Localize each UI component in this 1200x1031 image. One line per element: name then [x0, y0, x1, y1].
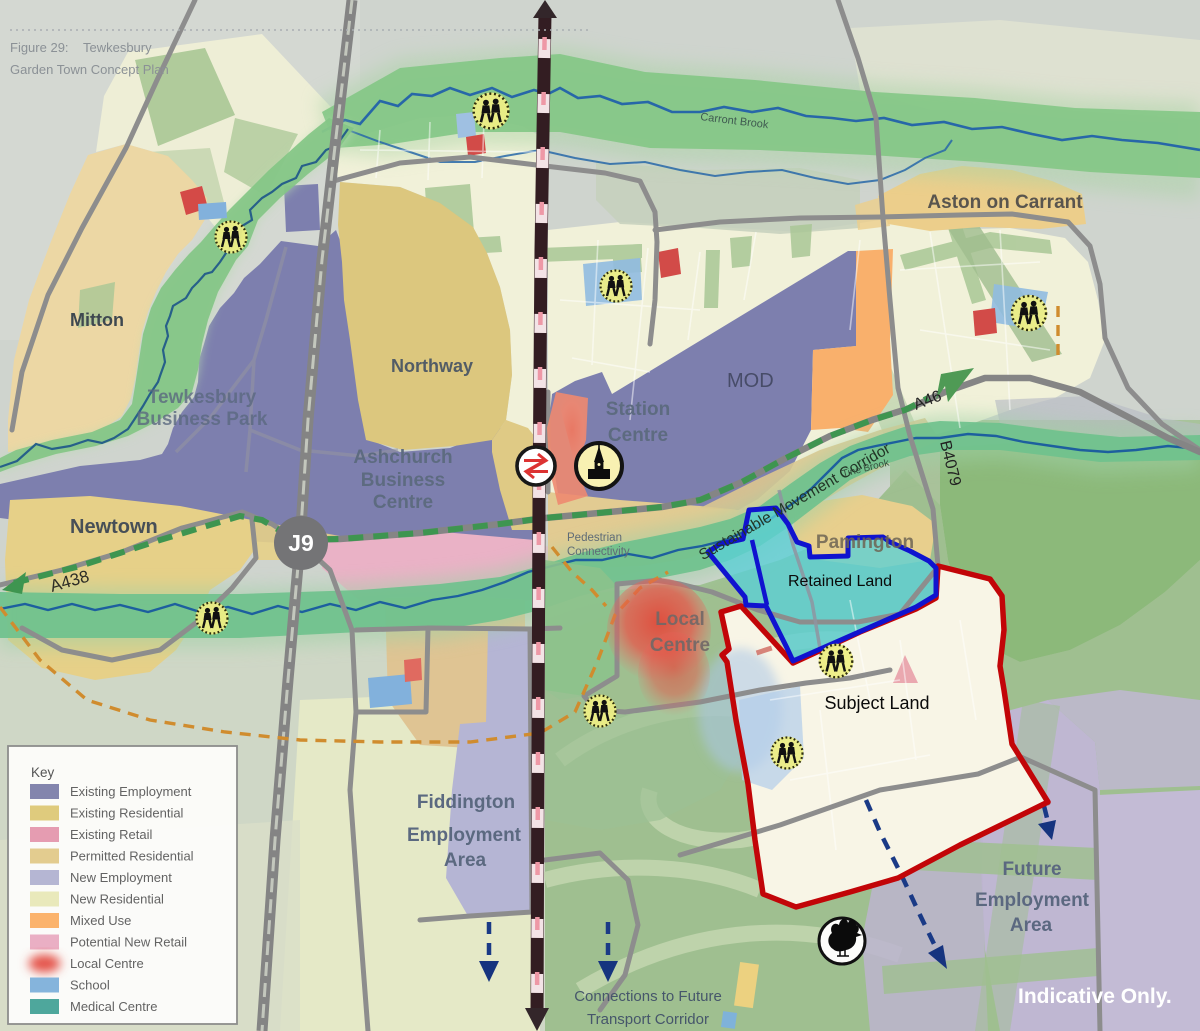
svg-text:Mixed Use: Mixed Use	[70, 913, 131, 928]
svg-text:Permitted Residential: Permitted Residential	[70, 849, 194, 864]
svg-text:Northway: Northway	[391, 356, 473, 376]
svg-text:Existing Retail: Existing Retail	[70, 827, 152, 842]
svg-text:Tewkesbury: Tewkesbury	[148, 387, 257, 408]
svg-text:Potential New Retail: Potential New Retail	[70, 935, 187, 950]
svg-text:New Residential: New Residential	[70, 892, 164, 907]
svg-text:Mitton: Mitton	[70, 310, 124, 330]
svg-text:Area: Area	[1010, 915, 1053, 936]
svg-text:Medical Centre: Medical Centre	[70, 999, 157, 1014]
svg-text:Figure 29: Tewkesbury: Figure 29: Tewkesbury	[10, 40, 152, 55]
svg-text:Centre: Centre	[650, 635, 710, 656]
svg-text:Transport Corridor: Transport Corridor	[587, 1011, 709, 1028]
svg-text:Garden Town Concept Plan: Garden Town Concept Plan	[10, 62, 169, 77]
svg-text:Station: Station	[606, 399, 670, 420]
svg-text:Aston on Carrant: Aston on Carrant	[927, 192, 1083, 213]
svg-text:Existing Residential: Existing Residential	[70, 806, 184, 821]
svg-text:Connectivity: Connectivity	[567, 546, 630, 558]
svg-text:Employment: Employment	[975, 890, 1090, 911]
svg-text:Ashchurch: Ashchurch	[353, 447, 452, 468]
svg-text:MOD: MOD	[727, 370, 774, 392]
svg-text:Connections to Future: Connections to Future	[574, 988, 722, 1005]
svg-text:Centre: Centre	[608, 425, 668, 446]
svg-text:Employment: Employment	[407, 825, 522, 846]
svg-text:Retained Land: Retained Land	[788, 573, 892, 590]
svg-text:Pedestrian: Pedestrian	[567, 532, 622, 544]
svg-text:New Employment: New Employment	[70, 870, 172, 885]
svg-text:Newtown: Newtown	[70, 516, 158, 538]
svg-text:Indicative Only.: Indicative Only.	[1018, 985, 1172, 1008]
svg-text:School: School	[70, 978, 110, 993]
svg-text:Business: Business	[361, 470, 445, 491]
svg-text:Existing Employment: Existing Employment	[70, 784, 192, 799]
svg-text:Key: Key	[31, 765, 55, 780]
svg-text:Pamington: Pamington	[816, 532, 914, 553]
svg-text:Fiddington: Fiddington	[417, 792, 515, 813]
svg-text:Area: Area	[444, 850, 487, 871]
svg-text:J9: J9	[288, 530, 314, 556]
svg-text:Future: Future	[1002, 859, 1061, 880]
svg-text:Local Centre: Local Centre	[70, 956, 144, 971]
svg-text:Business Park: Business Park	[137, 409, 268, 430]
svg-text:Centre: Centre	[373, 492, 433, 513]
svg-text:Local: Local	[655, 609, 705, 630]
svg-text:Subject Land: Subject Land	[824, 693, 929, 713]
